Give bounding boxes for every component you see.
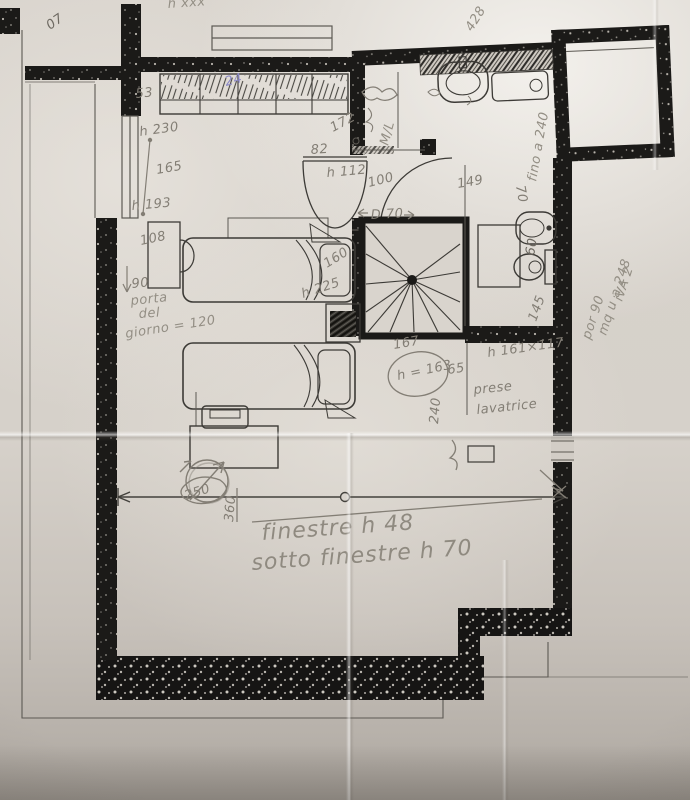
shelf xyxy=(228,218,328,238)
annotation: 145 xyxy=(526,293,549,323)
wall-segment xyxy=(96,656,484,700)
annotation: h 193 xyxy=(131,196,172,214)
annotation: 82 xyxy=(310,142,329,158)
floor-plan-photo: 07 h xxx 428 24 53 h 230 165 h 193 172 8… xyxy=(0,0,690,800)
annotation: 165 xyxy=(155,159,184,178)
wall-segment xyxy=(458,608,480,662)
annotation: 149 xyxy=(456,173,485,192)
annotation: 53 xyxy=(135,85,154,102)
wall-segment xyxy=(0,8,20,34)
annotation: prese xyxy=(472,379,513,398)
walls xyxy=(0,4,675,700)
annotation: 90 xyxy=(131,275,150,292)
living-room-items xyxy=(450,440,494,470)
floor-plan-drawing: 07 h xxx 428 24 53 h 230 165 h 193 172 8… xyxy=(0,0,690,800)
annotation: h 112 xyxy=(326,163,367,181)
wall-segment xyxy=(96,218,117,660)
annotation: del xyxy=(138,306,160,322)
stairs xyxy=(362,220,466,336)
annotation: 07 xyxy=(44,11,67,33)
shower-tray xyxy=(478,225,520,287)
annotation: 160 xyxy=(321,245,351,272)
annotation: 428 xyxy=(463,4,490,34)
annotation: 167 xyxy=(392,334,421,353)
annotation: 108 xyxy=(139,229,168,249)
desk xyxy=(190,392,278,468)
annotation: h xxx xyxy=(167,0,206,12)
wall-segment xyxy=(141,57,353,72)
wall-segment xyxy=(553,458,572,616)
annotation: lavatrice xyxy=(476,397,538,418)
annotation: h 230 xyxy=(138,120,179,140)
wall-segment xyxy=(350,57,365,155)
annotation: 360 xyxy=(222,495,239,523)
wall-segment xyxy=(553,158,572,460)
wall-segment xyxy=(25,66,123,80)
annotation: 70 xyxy=(512,184,530,204)
annotation: 240 xyxy=(427,397,444,425)
wall-segment xyxy=(420,139,436,155)
annotation: D 70 xyxy=(370,206,403,223)
annotation: 100 xyxy=(366,170,395,191)
windows xyxy=(122,26,332,218)
radiator xyxy=(491,71,548,101)
annotation: 250 xyxy=(183,481,213,503)
annotation: M/L xyxy=(377,120,398,147)
shaft-walls xyxy=(551,25,675,162)
bed-2 xyxy=(183,343,355,418)
annotation: fino a 240 xyxy=(525,111,552,183)
annotation: 65 xyxy=(446,361,465,378)
annotation: 60 xyxy=(523,237,541,257)
annotation: h 225 xyxy=(300,275,342,302)
annotation: h = 163 xyxy=(396,358,454,384)
